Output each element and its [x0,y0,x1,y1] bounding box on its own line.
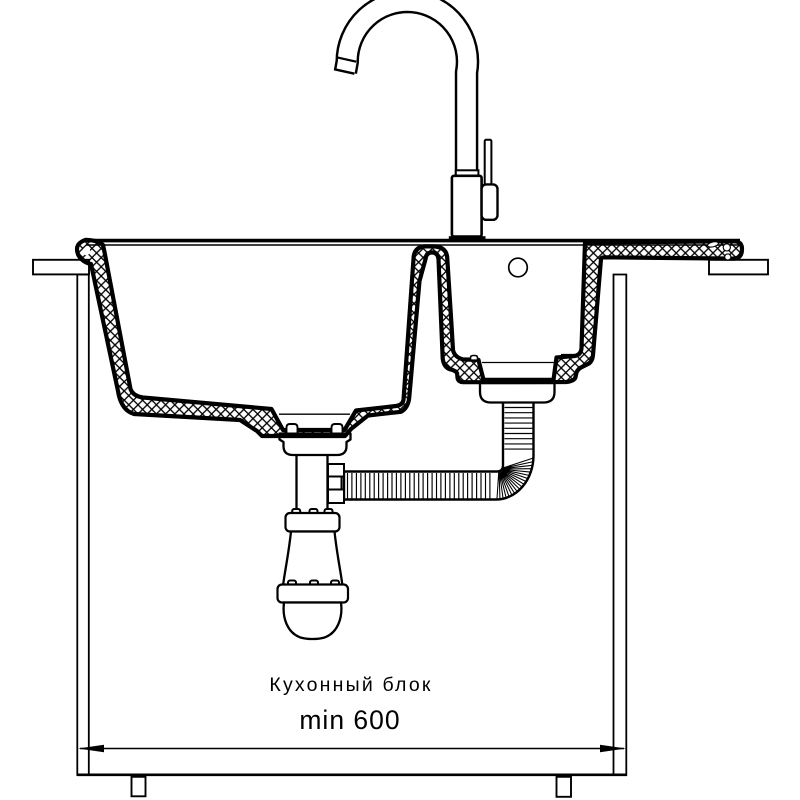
svg-text:Кухонный блок: Кухонный блок [269,674,432,696]
svg-text:min 600: min 600 [299,705,400,735]
